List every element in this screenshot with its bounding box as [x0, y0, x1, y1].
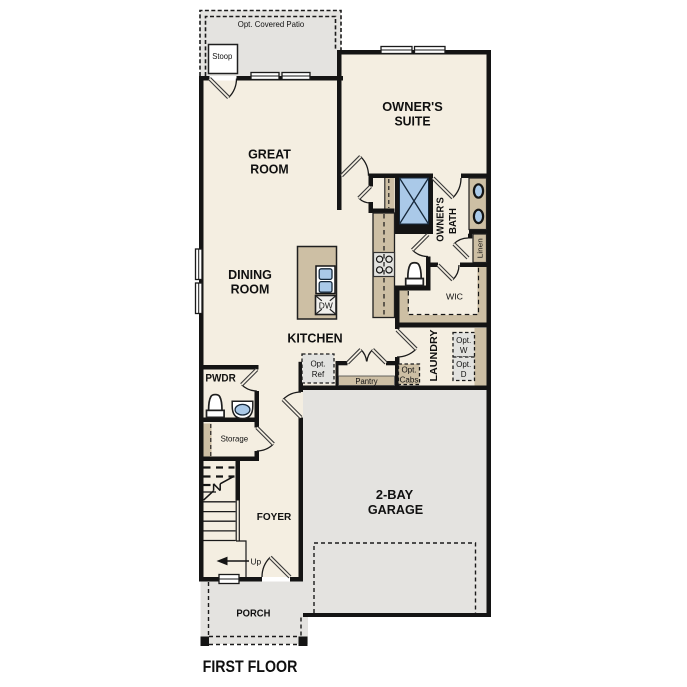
svg-text:Up: Up — [251, 556, 262, 566]
svg-text:DINING: DINING — [228, 267, 272, 282]
svg-text:WIC: WIC — [446, 291, 463, 301]
svg-text:Opt.: Opt. — [456, 336, 471, 345]
svg-text:D: D — [461, 370, 467, 379]
svg-text:W: W — [460, 346, 468, 355]
svg-text:LAUNDRY: LAUNDRY — [428, 330, 440, 382]
svg-text:ROOM: ROOM — [250, 162, 288, 177]
svg-text:Pantry: Pantry — [355, 377, 377, 386]
svg-text:PORCH: PORCH — [236, 607, 270, 619]
svg-text:Opt.: Opt. — [401, 365, 416, 374]
svg-text:Opt.: Opt. — [456, 360, 471, 369]
svg-text:SUITE: SUITE — [394, 114, 431, 129]
svg-text:Storage: Storage — [221, 435, 249, 444]
svg-text:PWDR: PWDR — [205, 373, 236, 385]
svg-text:DW: DW — [319, 301, 334, 311]
svg-text:KITCHEN: KITCHEN — [287, 331, 342, 346]
svg-text:OWNER'S: OWNER'S — [382, 99, 443, 114]
svg-text:OWNER'S: OWNER'S — [435, 197, 447, 242]
svg-text:Stoop: Stoop — [212, 52, 232, 61]
svg-text:GARAGE: GARAGE — [368, 502, 424, 517]
svg-text:Linen: Linen — [475, 238, 484, 258]
svg-text:Cabs: Cabs — [400, 375, 419, 384]
svg-text:Opt. Covered Patio: Opt. Covered Patio — [238, 19, 305, 29]
svg-text:FIRST FLOOR: FIRST FLOOR — [203, 657, 298, 676]
svg-text:BATH: BATH — [447, 208, 459, 234]
svg-text:FOYER: FOYER — [257, 511, 292, 523]
svg-text:2-BAY: 2-BAY — [376, 487, 414, 502]
svg-text:GREAT: GREAT — [248, 146, 291, 161]
svg-text:Opt.: Opt. — [310, 359, 325, 368]
svg-text:ROOM: ROOM — [231, 282, 270, 297]
svg-text:Ref: Ref — [312, 370, 325, 379]
